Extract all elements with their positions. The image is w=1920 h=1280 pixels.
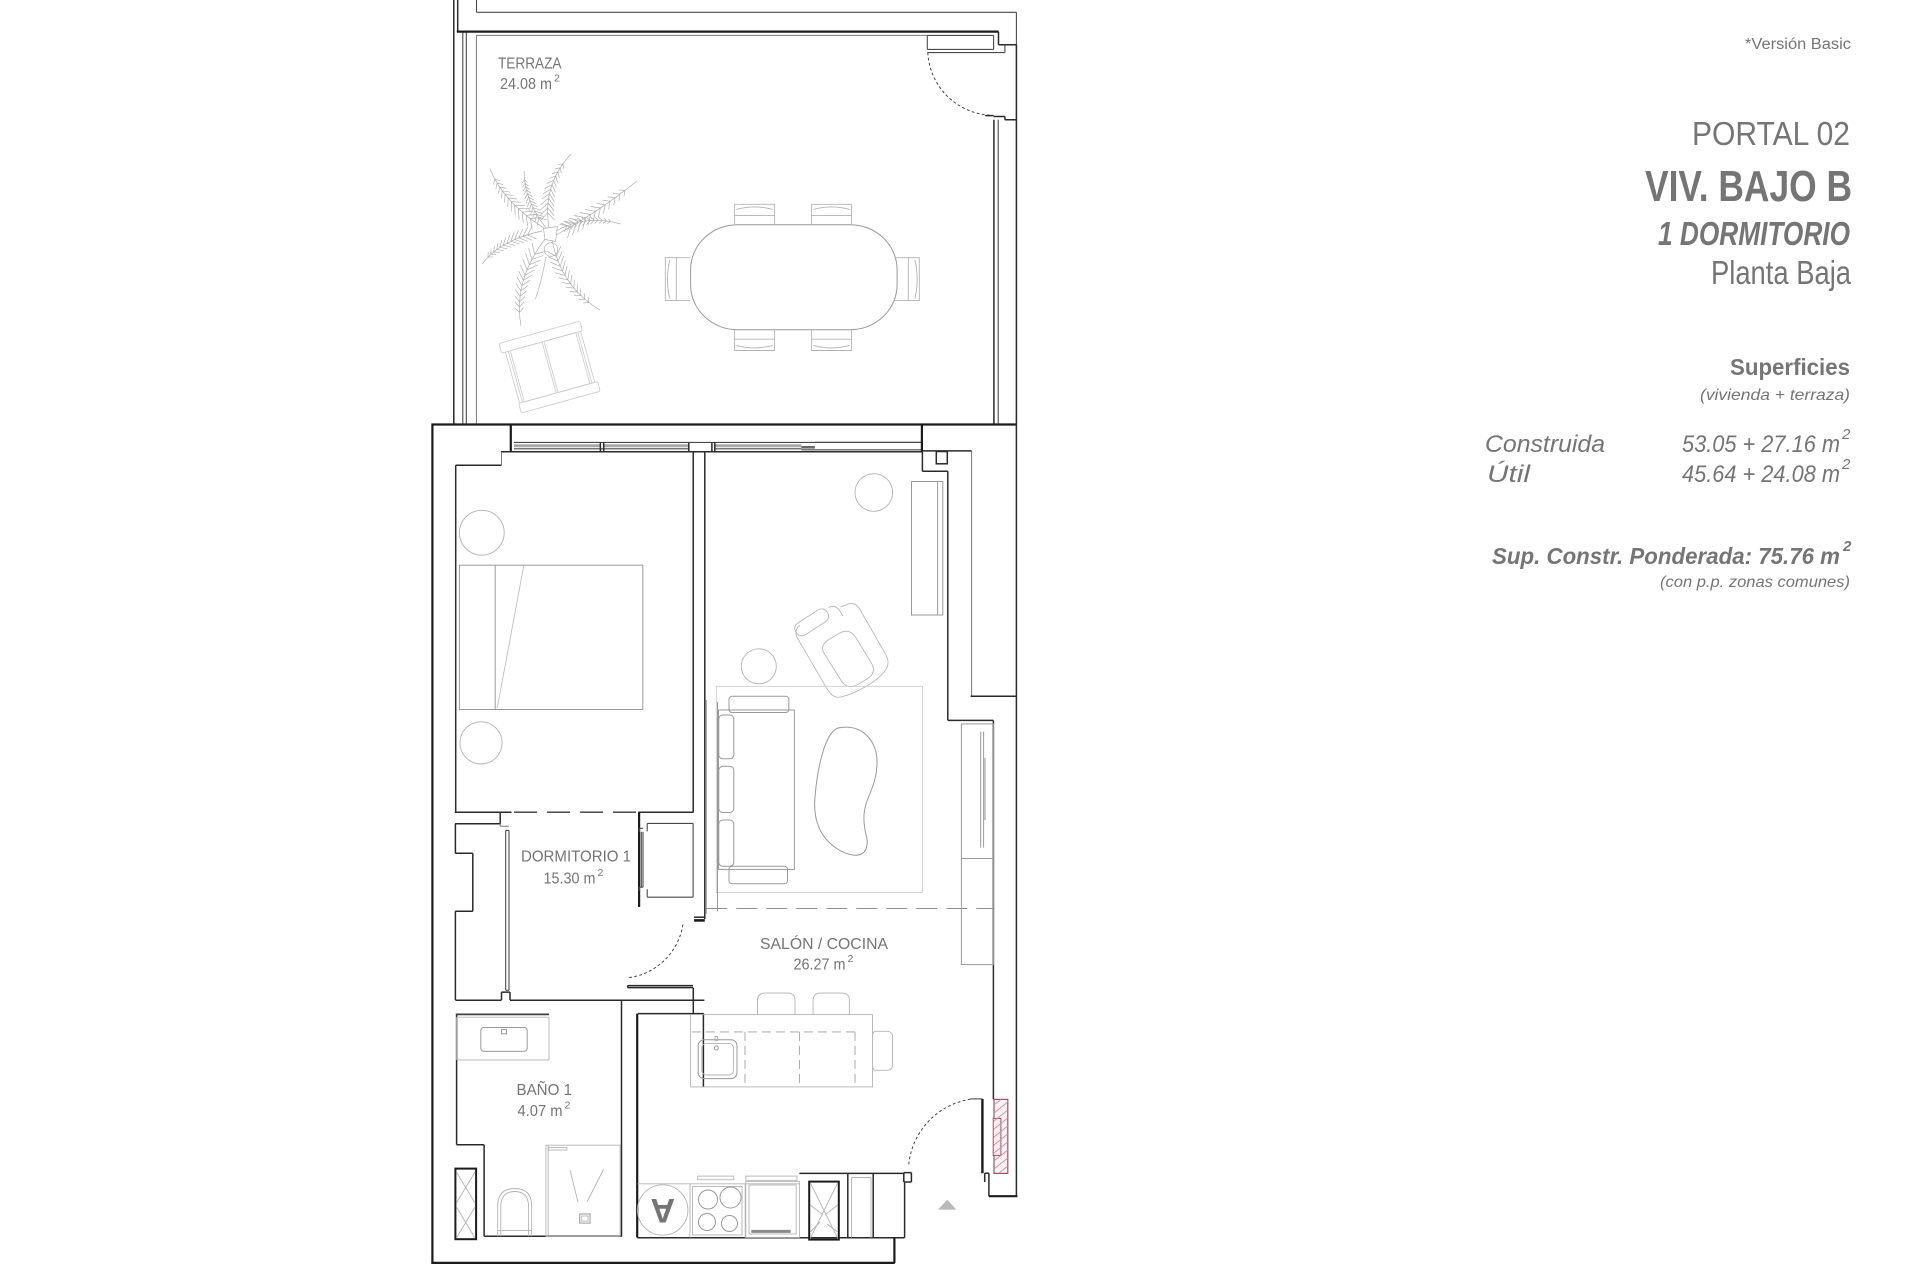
svg-text:26.27 m: 26.27 m (794, 957, 846, 974)
svg-text:SALÓN / COCINA: SALÓN / COCINA (760, 934, 888, 953)
svg-text:Planta Baja: Planta Baja (1711, 254, 1852, 291)
svg-text:1 DORMITORIO: 1 DORMITORIO (1658, 215, 1850, 252)
svg-text:Útil: Útil (1487, 461, 1531, 488)
svg-text:2: 2 (1841, 456, 1851, 473)
svg-text:BAÑO 1: BAÑO 1 (517, 1082, 573, 1099)
svg-text:45.64 + 24.08 m: 45.64 + 24.08 m (1682, 461, 1840, 488)
svg-text:2: 2 (565, 1100, 571, 1112)
svg-text:(vivienda + terraza): (vivienda + terraza) (1700, 387, 1850, 404)
svg-text:15.30 m: 15.30 m (544, 871, 596, 888)
svg-text:Sup. Constr. Ponderada: 75.76: Sup. Constr. Ponderada: 75.76 m (1492, 543, 1840, 569)
svg-text:53.05 + 27.16 m: 53.05 + 27.16 m (1682, 431, 1840, 458)
svg-text:2: 2 (554, 73, 560, 85)
svg-text:24.08 m: 24.08 m (500, 76, 552, 93)
svg-text:(con p.p. zonas comunes): (con p.p. zonas comunes) (1660, 574, 1850, 591)
svg-text:Construida: Construida (1485, 431, 1605, 458)
svg-text:TERRAZA: TERRAZA (498, 56, 562, 73)
svg-text:Superficies: Superficies (1730, 354, 1850, 380)
svg-text:*Versión Basic: *Versión Basic (1745, 36, 1851, 53)
svg-text:2: 2 (1842, 538, 1852, 555)
svg-text:2: 2 (848, 953, 854, 965)
svg-text:A: A (650, 1191, 675, 1229)
svg-text:VIV. BAJO B: VIV. BAJO B (1645, 162, 1852, 211)
svg-text:2: 2 (598, 867, 604, 879)
svg-text:4.07 m: 4.07 m (518, 1103, 563, 1120)
svg-text:2: 2 (1841, 426, 1851, 443)
svg-text:DORMITORIO 1: DORMITORIO 1 (521, 849, 631, 866)
svg-text:PORTAL 02: PORTAL 02 (1692, 115, 1850, 152)
